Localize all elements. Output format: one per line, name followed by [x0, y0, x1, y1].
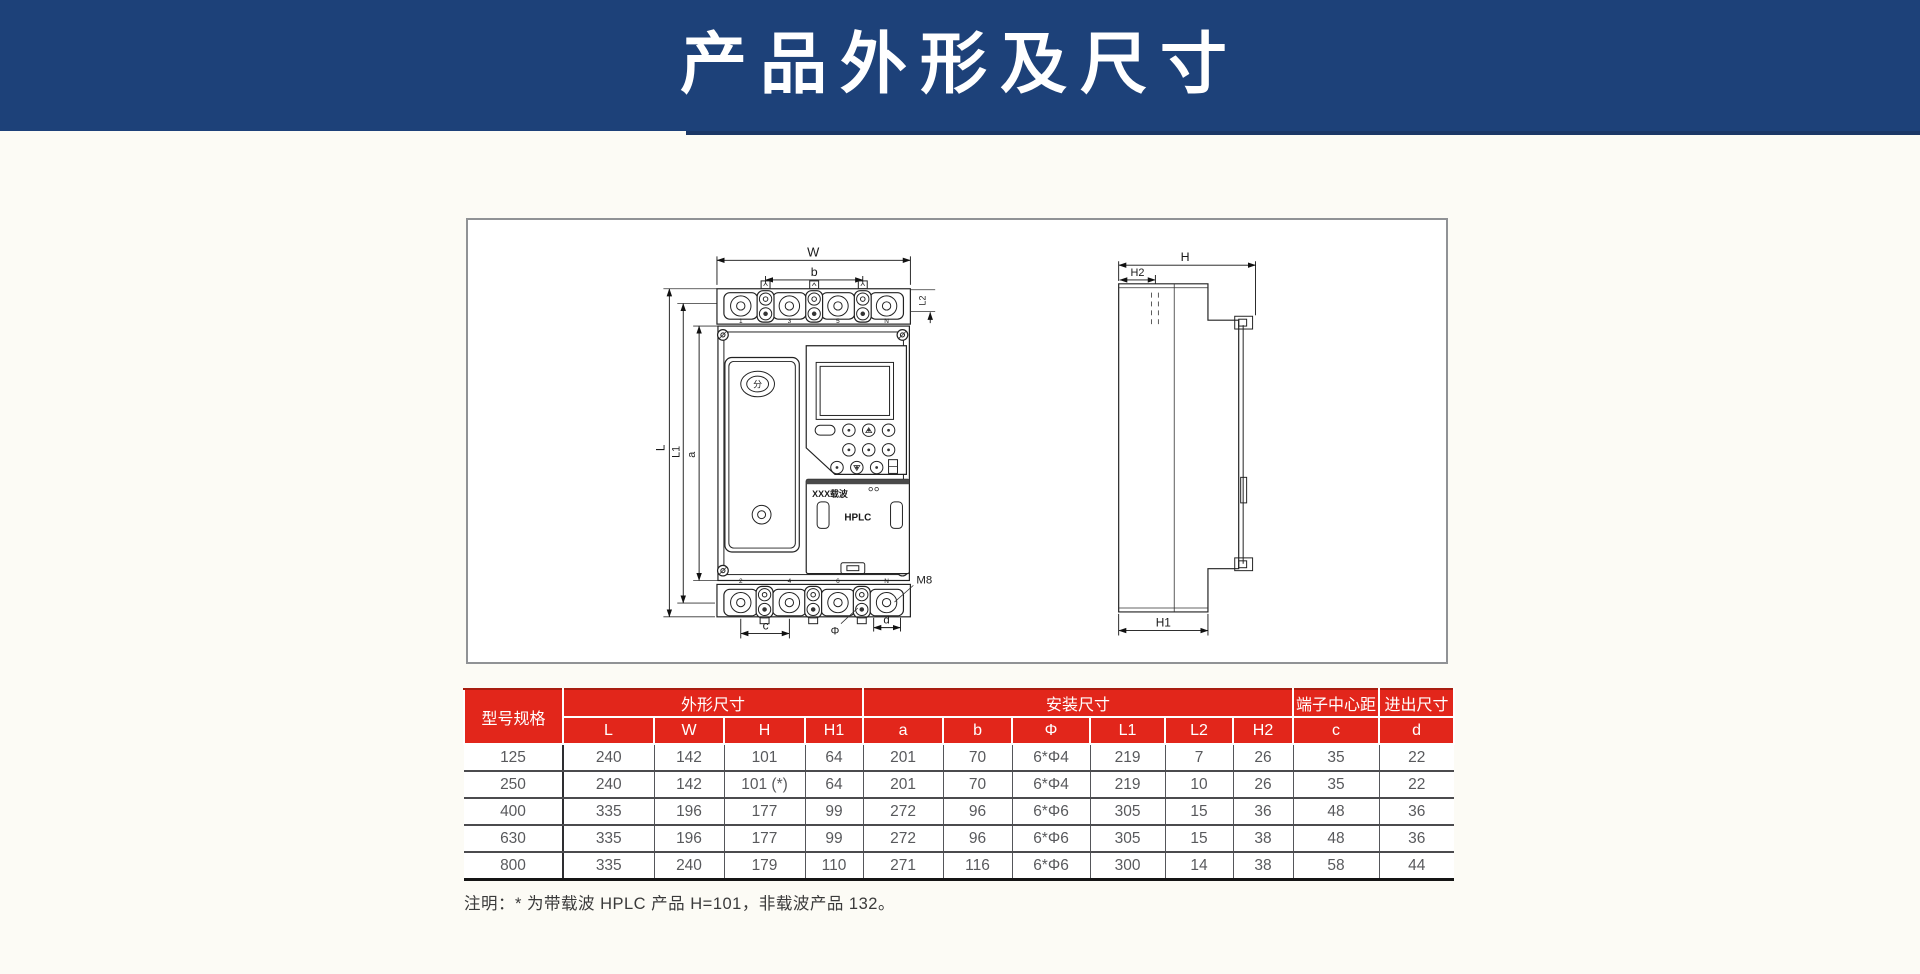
value-cell: 177	[724, 825, 805, 852]
terminal-label: N	[884, 578, 889, 585]
value-cell: 36	[1233, 798, 1293, 825]
label-phi: Φ	[831, 626, 840, 638]
model-cell: 800	[464, 852, 563, 880]
value-cell: 22	[1379, 771, 1454, 798]
value-cell: 38	[1233, 825, 1293, 852]
label-w: W	[807, 244, 820, 259]
page-header-banner: 产品外形及尺寸	[0, 0, 1920, 131]
terminal-label: 3	[788, 318, 792, 325]
terminal-label: N	[884, 318, 889, 325]
value-cell: 305	[1090, 798, 1165, 825]
value-cell: 26	[1233, 771, 1293, 798]
value-cell: 219	[1090, 771, 1165, 798]
value-cell: 15	[1165, 825, 1233, 852]
value-cell: 142	[654, 771, 724, 798]
module-name-label: HPLC	[844, 513, 871, 524]
front-view: W b L	[653, 244, 935, 638]
side-body	[1119, 284, 1253, 612]
label-c: c	[763, 619, 769, 633]
label-d: d	[883, 615, 889, 627]
value-cell: 58	[1293, 852, 1379, 880]
bottom-terminal-block: 2 4 6 N	[717, 578, 910, 624]
left-cover: 分	[725, 358, 799, 552]
value-cell: 36	[1379, 798, 1454, 825]
hplc-module: XXX载波 HPLC	[806, 479, 909, 573]
value-cell: 6*Φ6	[1012, 852, 1090, 880]
table-row: 8003352401791102711166*Φ630014385844	[464, 852, 1454, 880]
technical-drawing-panel: W b L	[466, 218, 1448, 664]
value-cell: 201	[863, 771, 943, 798]
terminal-label: 1	[739, 318, 743, 325]
value-cell: 44	[1379, 852, 1454, 880]
value-cell: 64	[805, 771, 863, 798]
table-row: 250240142101 (*)64201706*Φ421910263522	[464, 771, 1454, 798]
value-cell: 48	[1293, 825, 1379, 852]
dim-a: a	[686, 326, 718, 580]
side-view: H H2	[1119, 250, 1256, 635]
value-cell: 201	[863, 744, 943, 771]
value-cell: 48	[1293, 798, 1379, 825]
model-cell: 250	[464, 771, 563, 798]
value-cell: 26	[1233, 744, 1293, 771]
sub-header-10: c	[1293, 717, 1379, 744]
value-cell: 196	[654, 825, 724, 852]
value-cell: 35	[1293, 771, 1379, 798]
dim-b: b	[766, 265, 863, 283]
label-l2: L2	[917, 296, 927, 306]
value-cell: 240	[563, 744, 654, 771]
sub-header-9: H2	[1233, 717, 1293, 744]
value-cell: 300	[1090, 852, 1165, 880]
value-cell: 14	[1165, 852, 1233, 880]
value-cell: 219	[1090, 744, 1165, 771]
value-cell: 240	[563, 771, 654, 798]
label-a: a	[686, 451, 698, 458]
label-h: H	[1181, 250, 1190, 264]
value-cell: 10	[1165, 771, 1233, 798]
sub-header-6: Φ	[1012, 717, 1090, 744]
value-cell: 6*Φ4	[1012, 771, 1090, 798]
dimension-table: 型号规格 外形尺寸 安装尺寸 端子中心距 进出尺寸 LWHH1abΦL1L2H2…	[463, 688, 1455, 881]
value-cell: 179	[724, 852, 805, 880]
col-group-inout: 进出尺寸	[1379, 689, 1454, 717]
value-cell: 96	[943, 798, 1012, 825]
technical-drawing: W b L	[468, 220, 1446, 662]
label-b: b	[811, 265, 818, 279]
spec-table-section: 型号规格 外形尺寸 安装尺寸 端子中心距 进出尺寸 LWHH1abΦL1L2H2…	[463, 688, 1453, 914]
label-l: L	[653, 444, 667, 451]
value-cell: 99	[805, 798, 863, 825]
value-cell: 110	[805, 852, 863, 880]
col-header-model: 型号规格	[464, 689, 563, 744]
terminal-label: 6	[836, 578, 840, 585]
value-cell: 177	[724, 798, 805, 825]
value-cell: 101 (*)	[724, 771, 805, 798]
dim-h1: H1	[1119, 614, 1208, 636]
value-cell: 196	[654, 798, 724, 825]
model-cell: 630	[464, 825, 563, 852]
top-terminal-block: 1 3 5 N	[717, 281, 910, 325]
value-cell: 99	[805, 825, 863, 852]
label-h1: H1	[1156, 616, 1171, 630]
value-cell: 272	[863, 798, 943, 825]
value-cell: 335	[563, 798, 654, 825]
model-cell: 400	[464, 798, 563, 825]
table-note: 注明：* 为带载波 HPLC 产品 H=101，非载波产品 132。	[464, 890, 1453, 914]
value-cell: 15	[1165, 798, 1233, 825]
label-h2: H2	[1131, 267, 1145, 279]
sub-header-1: W	[654, 717, 724, 744]
sub-header-8: L2	[1165, 717, 1233, 744]
value-cell: 272	[863, 825, 943, 852]
table-row: 40033519617799272966*Φ630515364836	[464, 798, 1454, 825]
model-cell: 125	[464, 744, 563, 771]
module-brand-label: XXX载波	[812, 488, 848, 499]
dim-l2: L2	[910, 290, 935, 323]
sub-header-4: a	[863, 717, 943, 744]
value-cell: 70	[943, 771, 1012, 798]
table-row: 63033519617799272966*Φ630515384836	[464, 825, 1454, 852]
value-cell: 305	[1090, 825, 1165, 852]
label-l1: L1	[670, 446, 682, 458]
value-cell: 36	[1379, 825, 1454, 852]
value-cell: 96	[943, 825, 1012, 852]
label-m8: M8	[916, 574, 932, 586]
sub-header-0: L	[563, 717, 654, 744]
value-cell: 6*Φ6	[1012, 825, 1090, 852]
value-cell: 116	[943, 852, 1012, 880]
display-panel	[806, 346, 906, 475]
page-title: 产品外形及尺寸	[0, 0, 1920, 131]
banner-accent-strip	[686, 131, 1920, 135]
terminal-label: 5	[836, 318, 840, 325]
value-cell: 142	[654, 744, 724, 771]
table-row: 12524014210164201706*Φ42197263522	[464, 744, 1454, 771]
value-cell: 335	[563, 825, 654, 852]
value-cell: 6*Φ4	[1012, 744, 1090, 771]
terminal-label: 2	[739, 578, 743, 585]
sub-header-2: H	[724, 717, 805, 744]
dim-h2: H2	[1120, 267, 1156, 286]
value-cell: 6*Φ6	[1012, 798, 1090, 825]
trip-button-label: 分	[753, 380, 762, 390]
value-cell: 35	[1293, 744, 1379, 771]
sub-header-11: d	[1379, 717, 1454, 744]
value-cell: 101	[724, 744, 805, 771]
dim-c: c	[741, 619, 790, 639]
value-cell: 240	[654, 852, 724, 880]
col-group-mount: 安装尺寸	[863, 689, 1293, 717]
value-cell: 64	[805, 744, 863, 771]
value-cell: 7	[1165, 744, 1233, 771]
col-group-terminal: 端子中心距	[1293, 689, 1379, 717]
terminal-label: 4	[788, 578, 792, 585]
sub-header-7: L1	[1090, 717, 1165, 744]
value-cell: 70	[943, 744, 1012, 771]
col-group-shape: 外形尺寸	[563, 689, 863, 717]
sub-header-3: H1	[805, 717, 863, 744]
value-cell: 38	[1233, 852, 1293, 880]
value-cell: 335	[563, 852, 654, 880]
value-cell: 22	[1379, 744, 1454, 771]
value-cell: 271	[863, 852, 943, 880]
sub-header-5: b	[943, 717, 1012, 744]
